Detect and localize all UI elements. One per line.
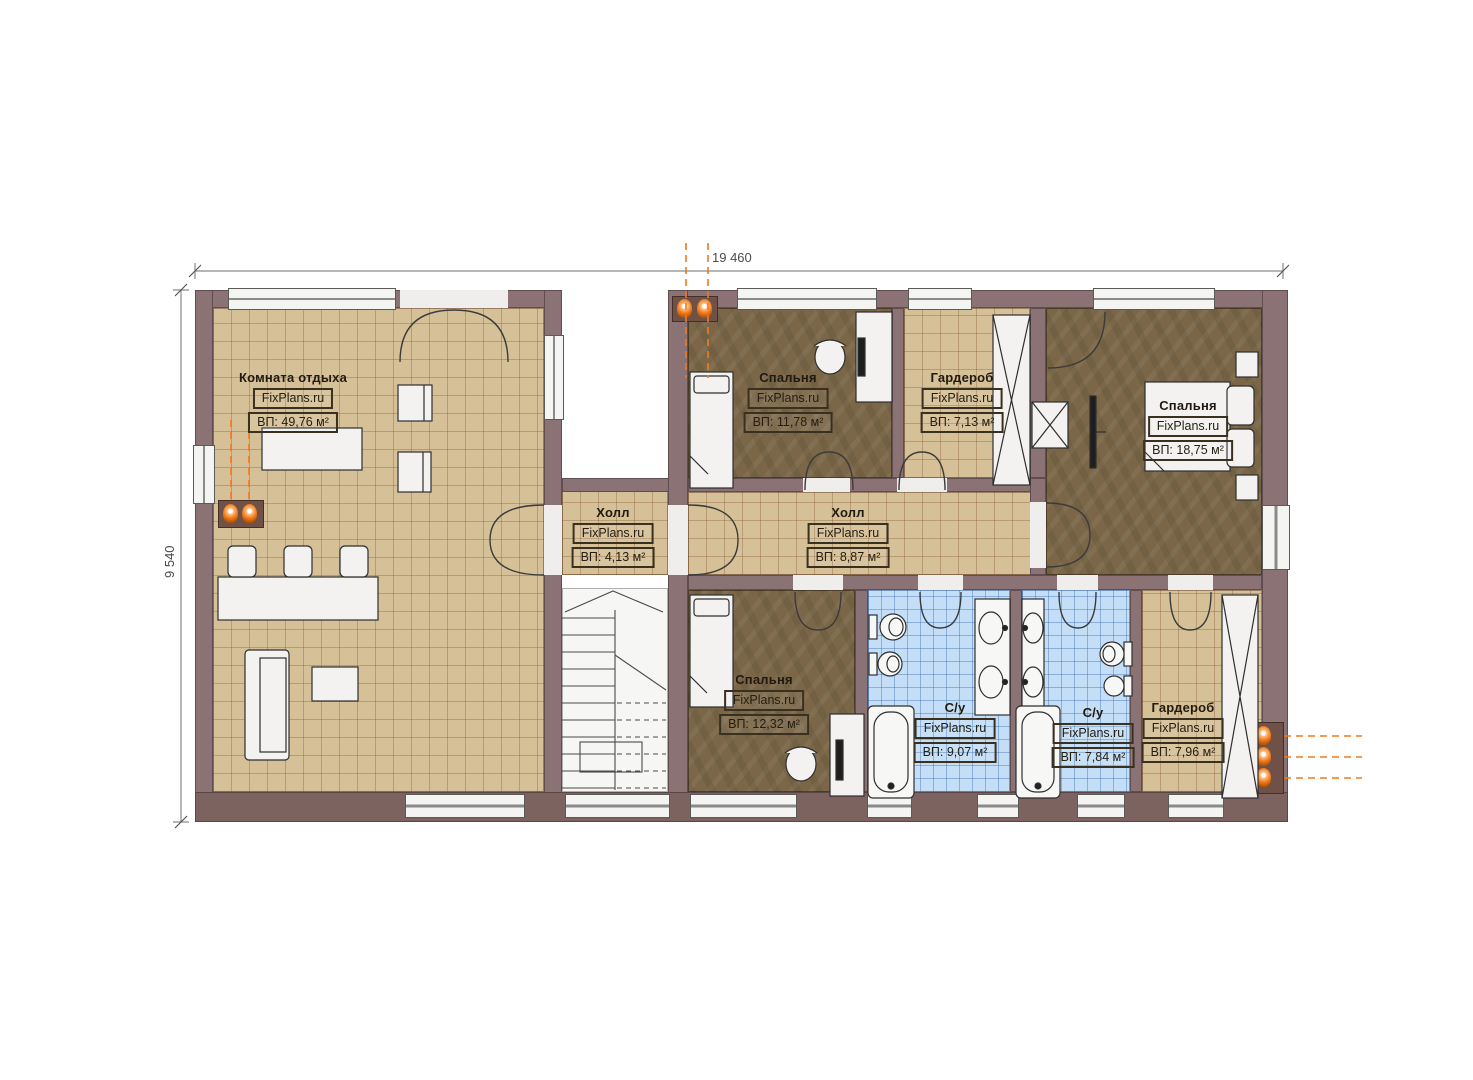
room-name: Спальня [735,672,793,687]
plan-linework [0,0,1473,1080]
bar-stool [340,546,368,577]
room-label-wardrobe-bottom: Гардероб FixPlans.ru ВП: 7,96 м² [1142,700,1225,763]
room-watermark: FixPlans.ru [1053,723,1134,744]
room-name: Холл [831,505,864,520]
toilet-tank [1124,642,1132,666]
monitor [858,338,865,376]
faucet [1003,626,1008,631]
bidet-bowl [1104,676,1124,696]
room-name: С/у [1083,705,1104,720]
room-label-hall-main: Холл FixPlans.ru ВП: 8,87 м² [807,505,890,568]
fixtures-bath2 [1016,599,1132,798]
room-watermark: FixPlans.ru [573,523,654,544]
door-arc-rest-entry [400,310,508,362]
room-area: ВП: 7,96 м² [1142,742,1225,763]
bathtub-drain [888,783,894,789]
stair-treads-left [562,618,615,788]
room-watermark: FixPlans.ru [1148,416,1229,437]
staircase [562,591,666,790]
armchair [398,385,432,421]
nightstand [1236,352,1258,377]
door-arc-bedroom-bottom [795,592,841,630]
floor-plan: Комната отдыха FixPlans.ru ВП: 49,76 м² … [0,0,1473,1080]
tv [1090,396,1096,468]
bed-pillow [694,376,729,393]
bar-stool [228,546,256,577]
room-watermark: FixPlans.ru [724,690,805,711]
desk-chair-back [785,747,817,753]
door-arcs [400,310,1211,630]
door-arc-master-top [1048,312,1105,368]
sink [979,666,1003,698]
room-watermark: FixPlans.ru [1143,718,1224,739]
room-area: ВП: 18,75 м² [1143,440,1233,461]
room-area: ВП: 49,76 м² [248,412,338,433]
door-arc-bedroom-top [805,452,853,490]
bar-counter [218,577,378,620]
room-label-bedroom-bottom: Спальня FixPlans.ru ВП: 12,32 м² [719,672,809,735]
faucet [1003,680,1008,685]
room-watermark: FixPlans.ru [922,388,1003,409]
room-label-bath2: С/у FixPlans.ru ВП: 7,84 м² [1052,705,1135,768]
door-arc-master-hall [1046,503,1090,567]
bed-pillow [694,599,729,616]
bathtub-drain [1035,783,1041,789]
room-watermark: FixPlans.ru [748,388,829,409]
armchair [398,452,431,492]
door-arc-hall-east [688,505,738,575]
room-name: Гардероб [930,370,993,385]
sink [979,612,1003,644]
bidet-tank [1124,676,1132,696]
stair-landing [580,742,642,772]
door-arc-bath2 [1059,592,1096,628]
room-area: ВП: 7,13 м² [921,412,1004,433]
room-watermark: FixPlans.ru [808,523,889,544]
monitor [836,740,843,780]
door-arc-wardrobe-bottom [1170,592,1211,630]
room-label-bedroom-top: Спальня FixPlans.ru ВП: 11,78 м² [744,370,833,433]
dimension-height: 9 540 [162,545,177,578]
sofa-seat [260,658,286,752]
room-area: ВП: 8,87 м² [807,547,890,568]
bar-stool [284,546,312,577]
room-area: ВП: 4,13 м² [572,547,655,568]
nightstand [1236,475,1258,500]
room-watermark: FixPlans.ru [915,718,996,739]
room-area: ВП: 12,32 м² [719,714,809,735]
door-arc-hall-west [490,505,544,575]
furniture-rest-room [218,385,432,760]
room-name: Холл [596,505,629,520]
stair-up-arrow [565,591,663,612]
wardrobe-bottom-closet [1222,595,1258,798]
room-name: Гардероб [1151,700,1214,715]
room-name: С/у [945,700,966,715]
faucet [1023,680,1028,685]
door-arc-bath1 [920,592,961,628]
room-area: ВП: 9,07 м² [914,742,997,763]
bidet-tank [869,653,877,675]
desk [830,714,864,796]
coffee-table [312,667,358,701]
room-label-wardrobe-top: Гардероб FixPlans.ru ВП: 7,13 м² [921,370,1004,433]
room-label-rest: Комната отдыха FixPlans.ru ВП: 49,76 м² [239,370,347,433]
room-area: ВП: 11,78 м² [744,412,833,433]
toilet-tank [869,615,877,639]
stair-break-line [615,655,666,690]
bathtub-inner [1022,712,1054,792]
door-arc-wardrobe-top [899,452,945,490]
room-watermark: FixPlans.ru [253,388,334,409]
room-label-bath1: С/у FixPlans.ru ВП: 9,07 м² [914,700,997,763]
toilet-bowl [880,614,906,640]
faucet [1023,626,1028,631]
room-name: Комната отдыха [239,370,347,385]
room-area: ВП: 7,84 м² [1052,747,1135,768]
bathtub-inner [874,712,908,792]
dining-table [262,428,362,470]
room-name: Спальня [1159,398,1217,413]
room-label-hall-small: Холл FixPlans.ru ВП: 4,13 м² [572,505,655,568]
room-label-master: Спальня FixPlans.ru ВП: 18,75 м² [1143,398,1233,461]
fixtures-bath1 [868,599,1010,798]
desk-chair-back [814,340,846,346]
room-name: Спальня [759,370,817,385]
dimension-width: 19 460 [712,250,752,265]
